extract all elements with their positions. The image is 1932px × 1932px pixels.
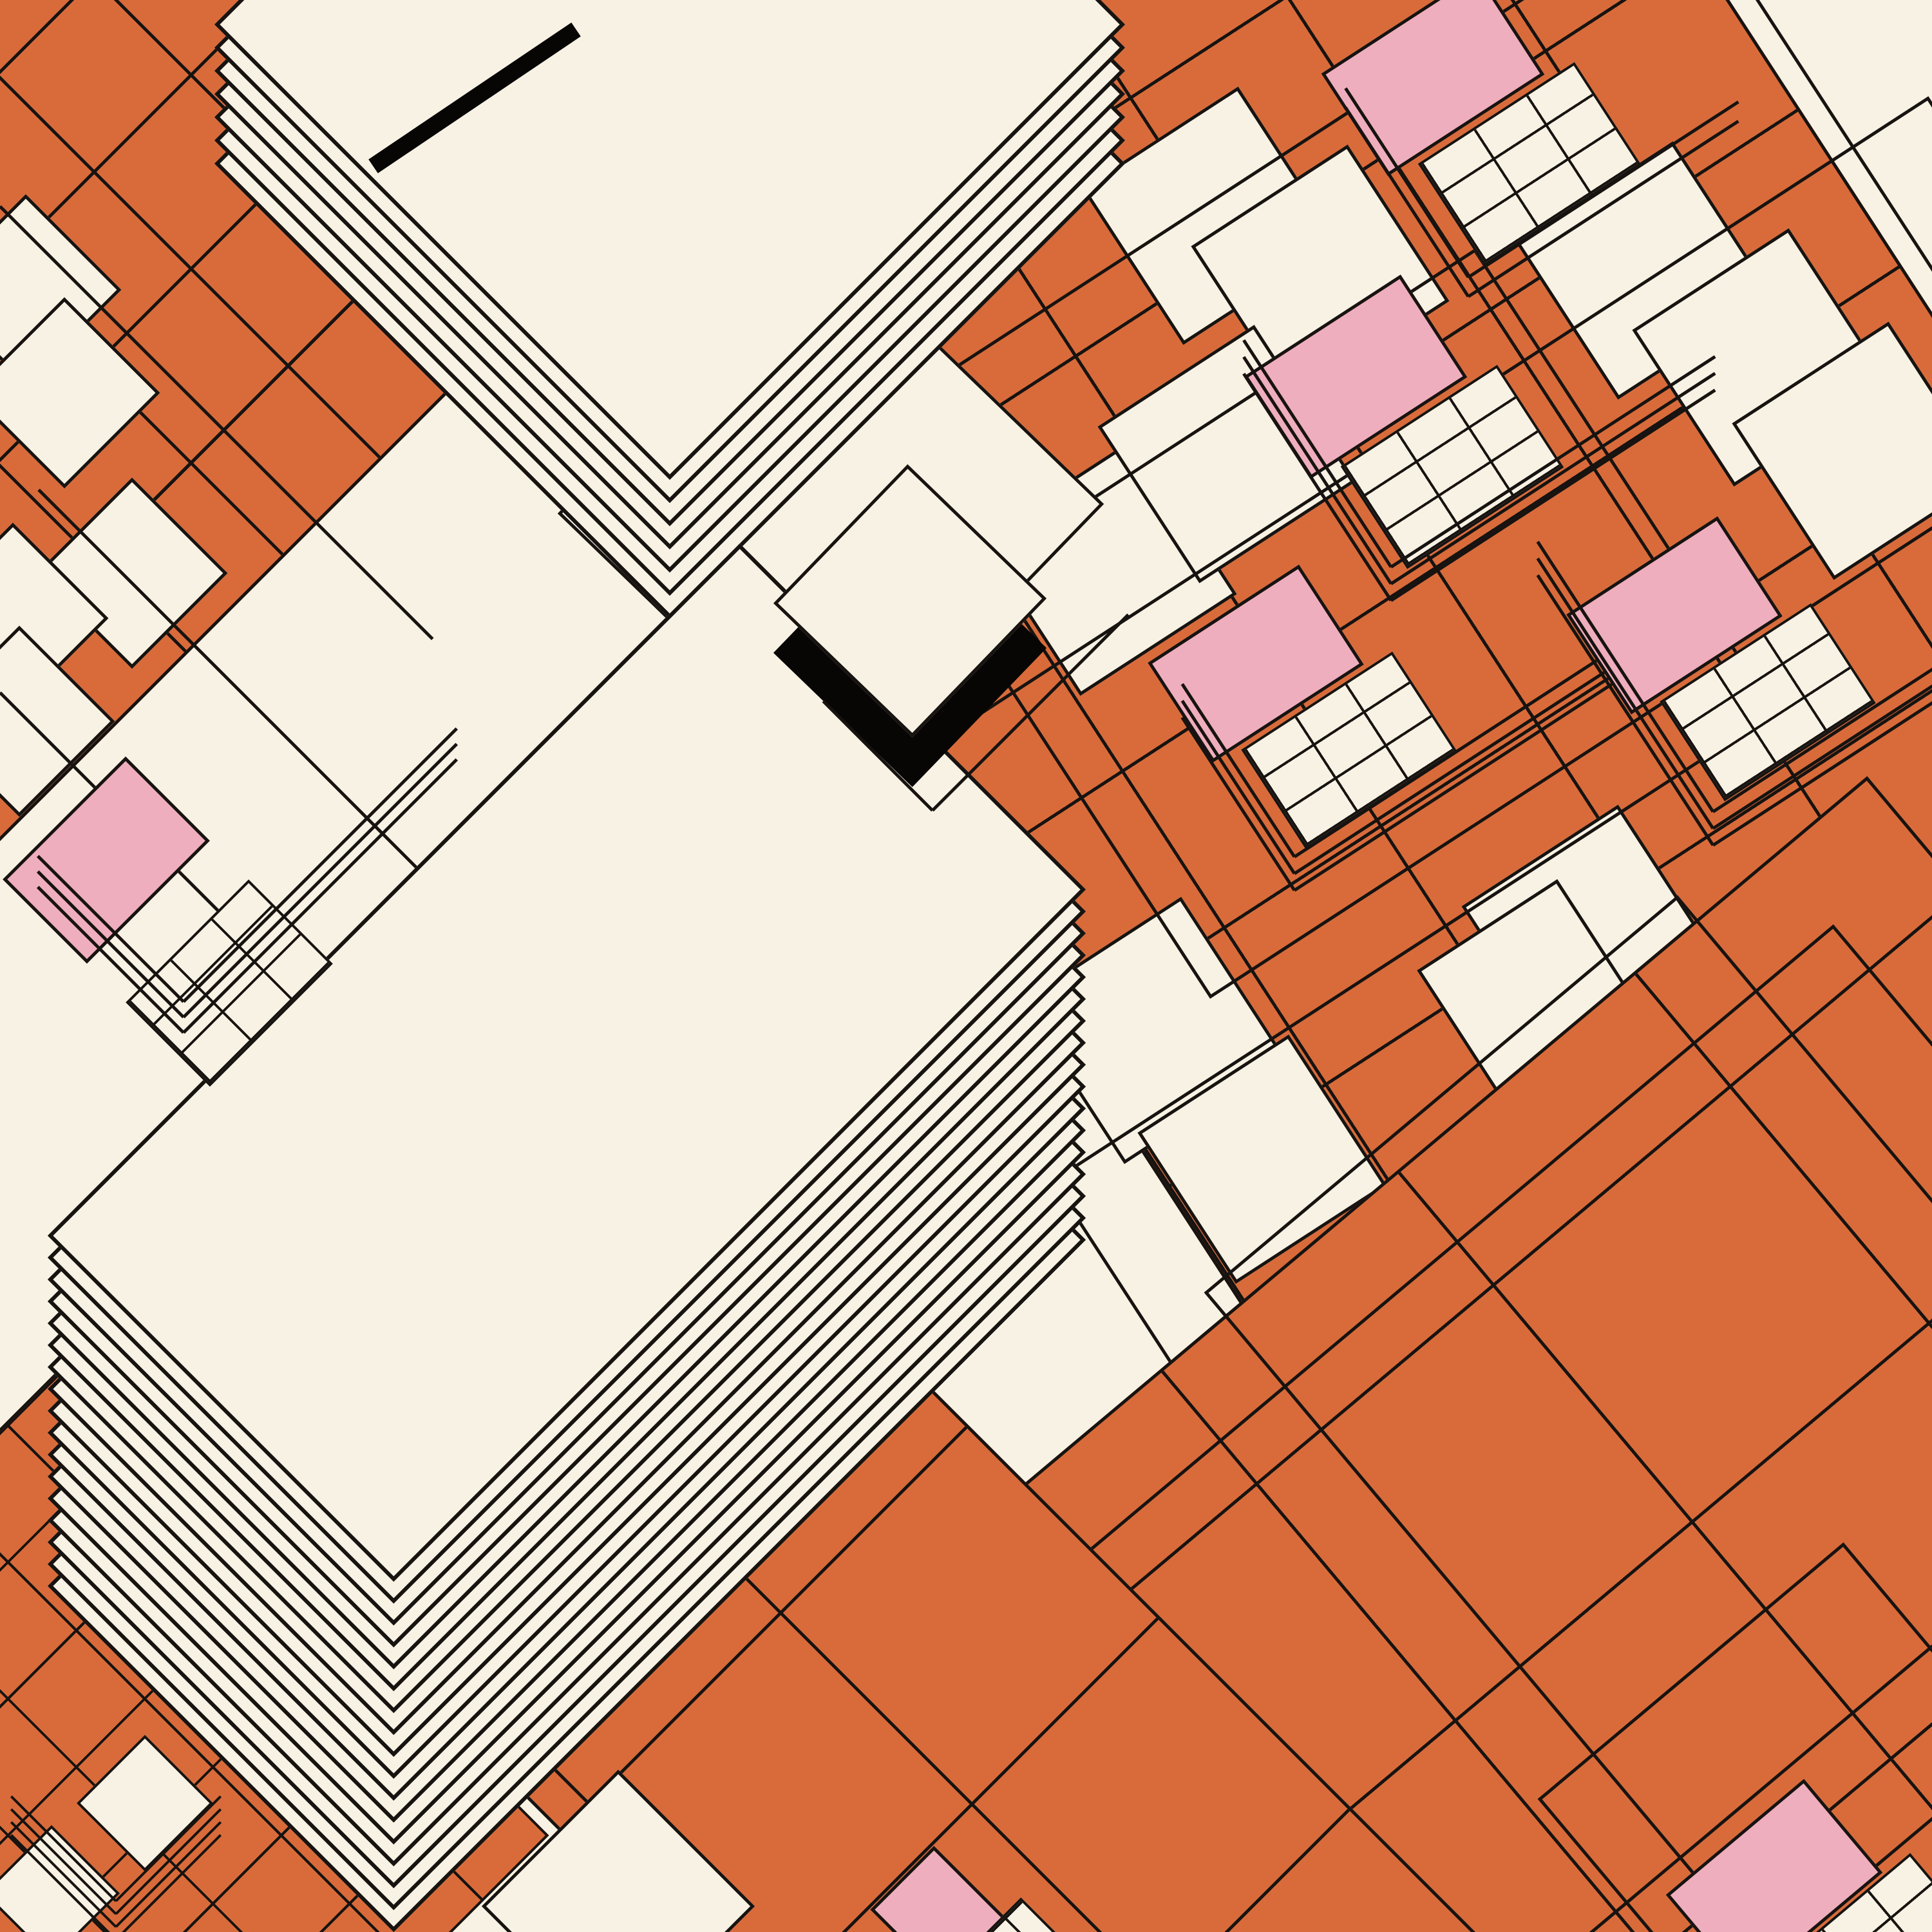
artwork-canvas <box>0 0 1932 1932</box>
